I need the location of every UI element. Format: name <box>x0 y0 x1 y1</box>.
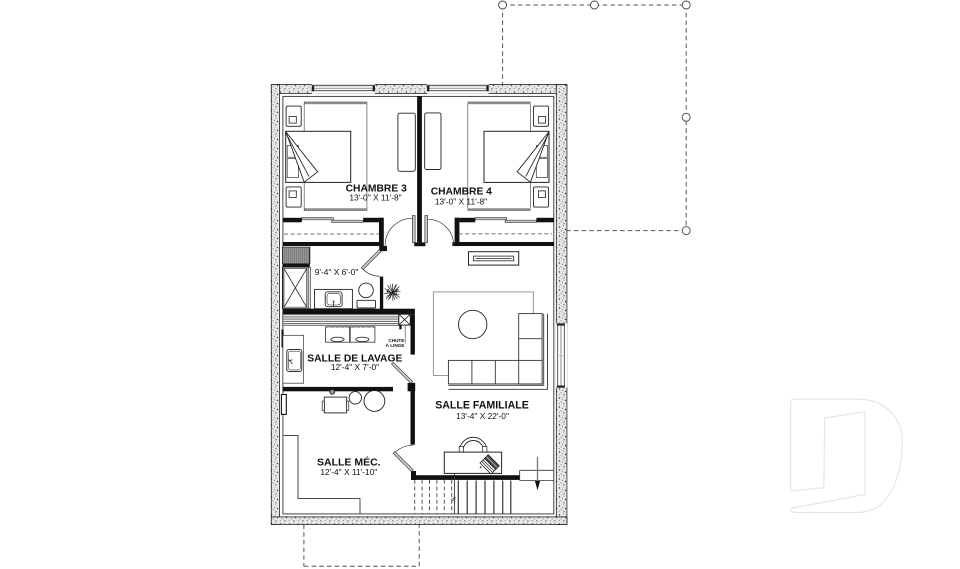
svg-text:13'-0" X 11'-8": 13'-0" X 11'-8" <box>349 193 401 203</box>
svg-text:13'-0" X 11'-8": 13'-0" X 11'-8" <box>435 197 487 207</box>
svg-text:12'-4" X 7'-0": 12'-4" X 7'-0" <box>331 362 379 372</box>
svg-text:13'-4" X 22'-0": 13'-4" X 22'-0" <box>456 411 509 421</box>
svg-text:9'-4" X 6'-0": 9'-4" X 6'-0" <box>315 267 359 277</box>
svg-text:À LINGE: À LINGE <box>386 342 405 348</box>
svg-text:12'-4" X 11'-10": 12'-4" X 11'-10" <box>320 467 377 477</box>
